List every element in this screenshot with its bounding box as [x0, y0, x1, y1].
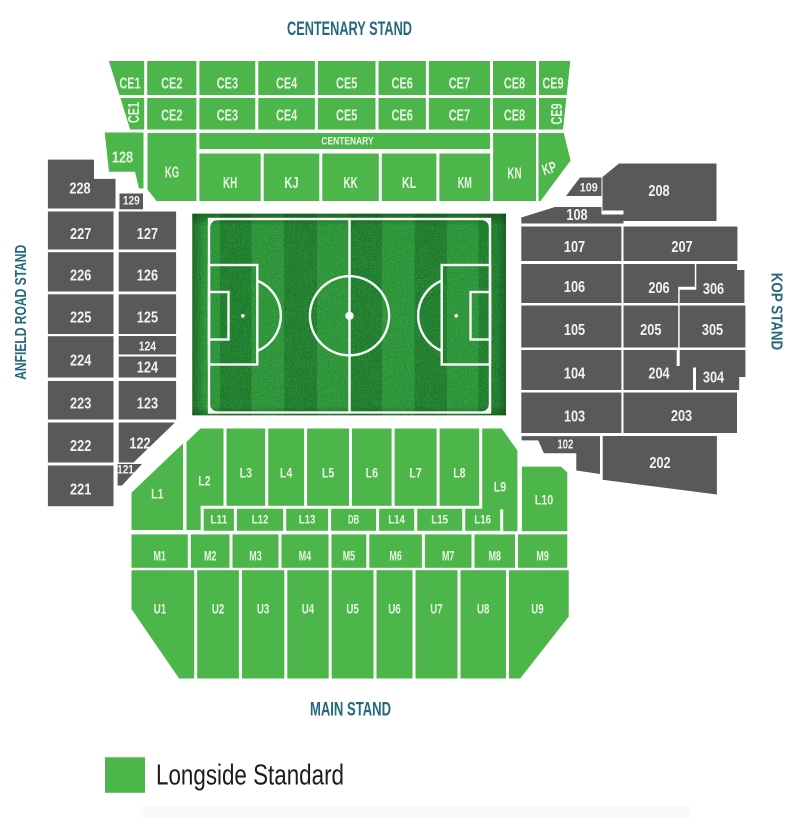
- svg-text:221: 221: [70, 481, 92, 498]
- svg-text:CE2: CE2: [161, 108, 182, 125]
- svg-text:105: 105: [564, 322, 586, 339]
- svg-text:202: 202: [649, 455, 670, 472]
- svg-text:204: 204: [648, 366, 670, 383]
- svg-text:L10: L10: [535, 493, 554, 508]
- svg-text:L14: L14: [388, 513, 405, 527]
- svg-text:L2: L2: [198, 474, 210, 489]
- svg-text:L6: L6: [366, 466, 379, 481]
- svg-text:L7: L7: [409, 466, 421, 481]
- svg-text:L5: L5: [322, 466, 335, 481]
- svg-text:U2: U2: [212, 602, 224, 617]
- svg-text:227: 227: [70, 226, 91, 243]
- svg-text:U1: U1: [154, 602, 167, 617]
- svg-text:L15: L15: [431, 513, 448, 527]
- svg-text:208: 208: [648, 183, 670, 200]
- svg-text:104: 104: [564, 366, 586, 383]
- svg-text:121: 121: [117, 465, 134, 477]
- svg-text:U8: U8: [477, 602, 490, 617]
- svg-text:U4: U4: [302, 602, 315, 617]
- svg-text:L8: L8: [453, 466, 466, 481]
- svg-text:M9: M9: [536, 549, 548, 564]
- svg-text:M7: M7: [442, 549, 454, 564]
- svg-text:CE5: CE5: [336, 108, 358, 125]
- svg-text:124: 124: [137, 360, 159, 377]
- svg-text:CE9: CE9: [542, 76, 564, 93]
- svg-text:U5: U5: [346, 602, 359, 617]
- svg-text:226: 226: [70, 267, 92, 284]
- svg-text:MAIN STAND: MAIN STAND: [310, 699, 391, 721]
- svg-text:CE4: CE4: [276, 76, 298, 93]
- svg-text:KOP STAND: KOP STAND: [767, 273, 784, 350]
- svg-text:127: 127: [137, 226, 158, 243]
- svg-text:109: 109: [580, 182, 598, 194]
- svg-text:123: 123: [137, 396, 159, 413]
- svg-text:M3: M3: [249, 549, 262, 564]
- svg-text:L12: L12: [252, 513, 269, 527]
- svg-text:U6: U6: [388, 602, 401, 617]
- svg-text:L3: L3: [240, 466, 253, 481]
- svg-text:225: 225: [70, 310, 92, 327]
- svg-text:305: 305: [702, 322, 724, 339]
- svg-text:129: 129: [123, 196, 140, 208]
- svg-text:203: 203: [671, 408, 693, 425]
- svg-text:KJ: KJ: [284, 175, 298, 192]
- svg-text:ANFIELD ROAD STAND: ANFIELD ROAD STAND: [13, 245, 30, 380]
- svg-text:U7: U7: [430, 602, 442, 617]
- svg-text:125: 125: [137, 310, 159, 327]
- svg-text:223: 223: [70, 396, 92, 413]
- svg-text:Longside Standard: Longside Standard: [156, 760, 344, 792]
- svg-text:M5: M5: [343, 549, 356, 564]
- svg-text:CE8: CE8: [504, 76, 526, 93]
- svg-text:CE6: CE6: [392, 108, 414, 125]
- svg-text:128: 128: [112, 150, 134, 167]
- svg-text:206: 206: [648, 280, 670, 297]
- svg-text:KK: KK: [344, 175, 359, 192]
- svg-text:CE7: CE7: [449, 108, 470, 125]
- svg-text:CE1: CE1: [126, 102, 143, 124]
- svg-text:103: 103: [564, 408, 586, 425]
- svg-text:306: 306: [703, 281, 725, 298]
- svg-text:126: 126: [137, 267, 159, 284]
- svg-text:207: 207: [671, 239, 692, 256]
- svg-text:L11: L11: [210, 513, 227, 527]
- svg-text:KL: KL: [402, 175, 416, 192]
- svg-text:CE6: CE6: [392, 76, 414, 93]
- svg-text:DB: DB: [348, 513, 359, 527]
- svg-text:M2: M2: [204, 549, 216, 564]
- svg-text:222: 222: [70, 438, 91, 455]
- svg-text:L16: L16: [474, 513, 491, 527]
- svg-text:CE3: CE3: [217, 76, 239, 93]
- svg-text:CENTENARY: CENTENARY: [321, 135, 374, 147]
- svg-text:KH: KH: [223, 175, 237, 192]
- svg-text:L4: L4: [280, 466, 293, 481]
- svg-text:106: 106: [564, 279, 586, 296]
- svg-text:U9: U9: [531, 602, 543, 617]
- svg-text:224: 224: [70, 352, 92, 369]
- svg-text:M4: M4: [299, 549, 312, 564]
- svg-text:122: 122: [129, 436, 150, 453]
- svg-text:CE7: CE7: [449, 76, 470, 93]
- svg-text:107: 107: [564, 239, 585, 256]
- svg-text:U3: U3: [257, 602, 270, 617]
- svg-text:M1: M1: [154, 549, 167, 564]
- svg-text:CENTENARY STAND: CENTENARY STAND: [287, 18, 412, 40]
- svg-text:304: 304: [703, 370, 725, 387]
- svg-text:L13: L13: [299, 513, 316, 527]
- svg-text:CE8: CE8: [504, 108, 526, 125]
- svg-text:M8: M8: [489, 549, 502, 564]
- svg-text:L1: L1: [151, 487, 164, 502]
- svg-text:CE5: CE5: [336, 76, 358, 93]
- svg-text:102: 102: [557, 438, 573, 452]
- svg-text:CE3: CE3: [217, 108, 239, 125]
- svg-text:KN: KN: [507, 166, 521, 183]
- svg-text:KM: KM: [458, 175, 472, 192]
- svg-text:108: 108: [566, 207, 588, 224]
- svg-text:L9: L9: [494, 480, 506, 495]
- svg-text:M6: M6: [389, 549, 402, 564]
- svg-text:205: 205: [640, 322, 662, 339]
- svg-text:CE1: CE1: [119, 76, 141, 93]
- svg-text:228: 228: [69, 181, 91, 198]
- svg-text:KG: KG: [165, 165, 179, 182]
- svg-text:CE9: CE9: [549, 103, 566, 125]
- svg-text:CE4: CE4: [276, 108, 298, 125]
- svg-text:124: 124: [139, 340, 156, 354]
- svg-text:CE2: CE2: [161, 76, 182, 93]
